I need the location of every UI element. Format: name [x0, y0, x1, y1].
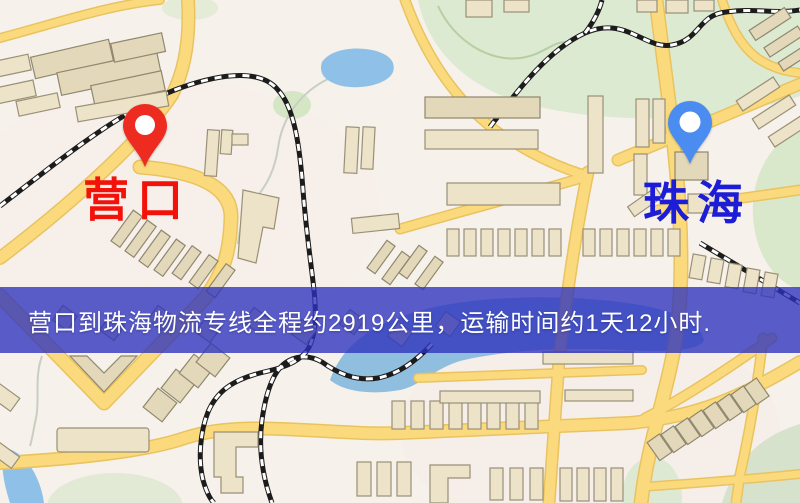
origin-pin[interactable] — [121, 103, 169, 169]
destination-pin-icon — [666, 100, 714, 166]
origin-pin-icon — [121, 103, 169, 169]
origin-label: 营口 — [83, 177, 191, 223]
destination-pin[interactable] — [666, 100, 714, 166]
destination-label: 珠海 — [643, 180, 751, 226]
map-screenshot: 营口 珠海 营口到珠海物流专线全程约2919公里，运输时间约1天12小时. — [0, 0, 800, 503]
map-canvas[interactable] — [0, 0, 800, 503]
route-info-banner: 营口到珠海物流专线全程约2919公里，运输时间约1天12小时. — [0, 287, 800, 353]
route-info-text: 营口到珠海物流专线全程约2919公里，运输时间约1天12小时. — [28, 303, 711, 338]
